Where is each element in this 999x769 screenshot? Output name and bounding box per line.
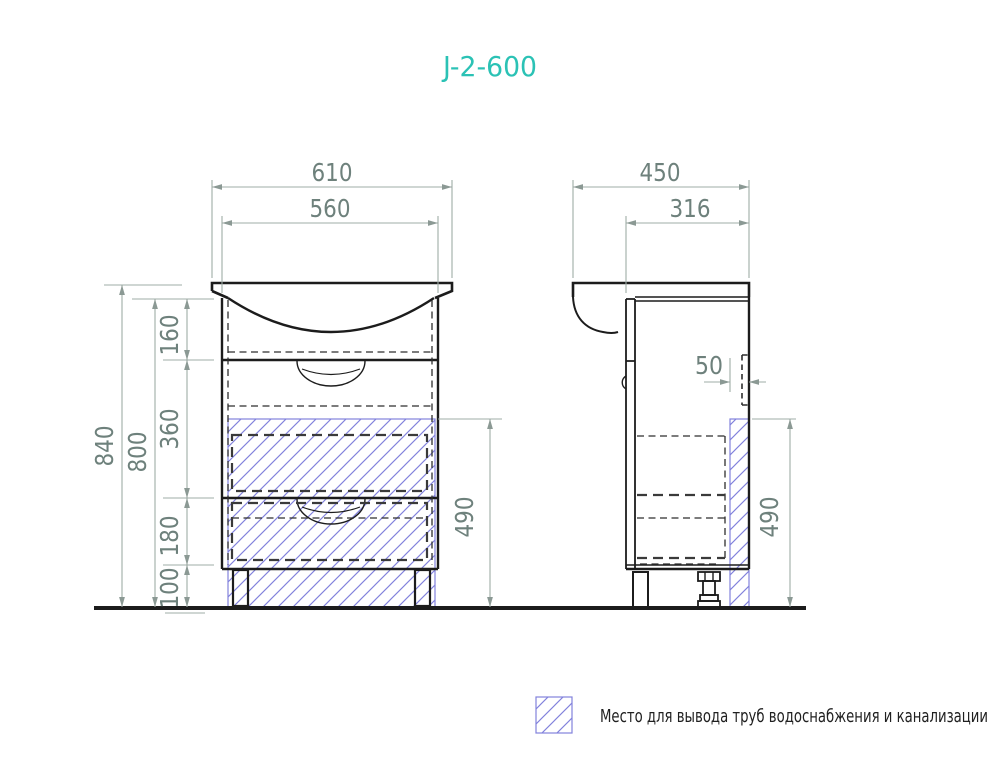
- dim-overall-width-label: 610: [312, 158, 353, 187]
- dim-sink-section-label: 160: [155, 315, 184, 356]
- dim-overall-height-label: 840: [90, 426, 119, 467]
- dim-service-width-label: 50: [695, 351, 723, 380]
- dim-body-width-label: 560: [310, 194, 351, 223]
- drawer-front-panel-side: [626, 299, 635, 569]
- countertop-front: [212, 283, 452, 298]
- hidden-shelf-edges-side: [637, 495, 725, 558]
- dim-lower-drawer-label: 180: [155, 516, 184, 557]
- legend: Место для вывода труб водоснабжения и ка…: [536, 697, 988, 733]
- dim-service-height-front-label: 490: [450, 497, 479, 538]
- legend-hatch-swatch: [536, 697, 572, 733]
- service-zone-hatch-side: [730, 419, 749, 607]
- side-view: [573, 283, 749, 607]
- dim-leg-height-label: 100: [155, 568, 184, 609]
- countertop-underside: [635, 297, 749, 301]
- drawing-page: 610 560 450 316 840 800 160 360 180 100 …: [0, 0, 999, 769]
- dim-upper-drawer-label: 360: [155, 409, 184, 450]
- technical-drawing: 610 560 450 316 840 800 160 360 180 100 …: [0, 0, 999, 769]
- adjustable-foot: [698, 572, 720, 607]
- countertop-side: [573, 283, 749, 297]
- dim-service-height-side-label: 490: [755, 497, 784, 538]
- dim-overall-depth-label: 450: [640, 158, 681, 187]
- dim-body-height-label: 800: [123, 432, 152, 473]
- drawer-handle-1: [297, 361, 365, 386]
- sink-basin-curve: [228, 298, 434, 332]
- basin-profile-curve: [573, 297, 618, 333]
- drawing-title: J-2-600: [441, 50, 537, 83]
- legend-label: Место для вывода труб водоснабжения и ка…: [600, 707, 988, 727]
- leg-side-front: [633, 572, 648, 607]
- dim-inner-depth-label: 316: [670, 194, 711, 223]
- dimension-extension-lines: [104, 180, 796, 613]
- hidden-edges-side: [637, 436, 725, 564]
